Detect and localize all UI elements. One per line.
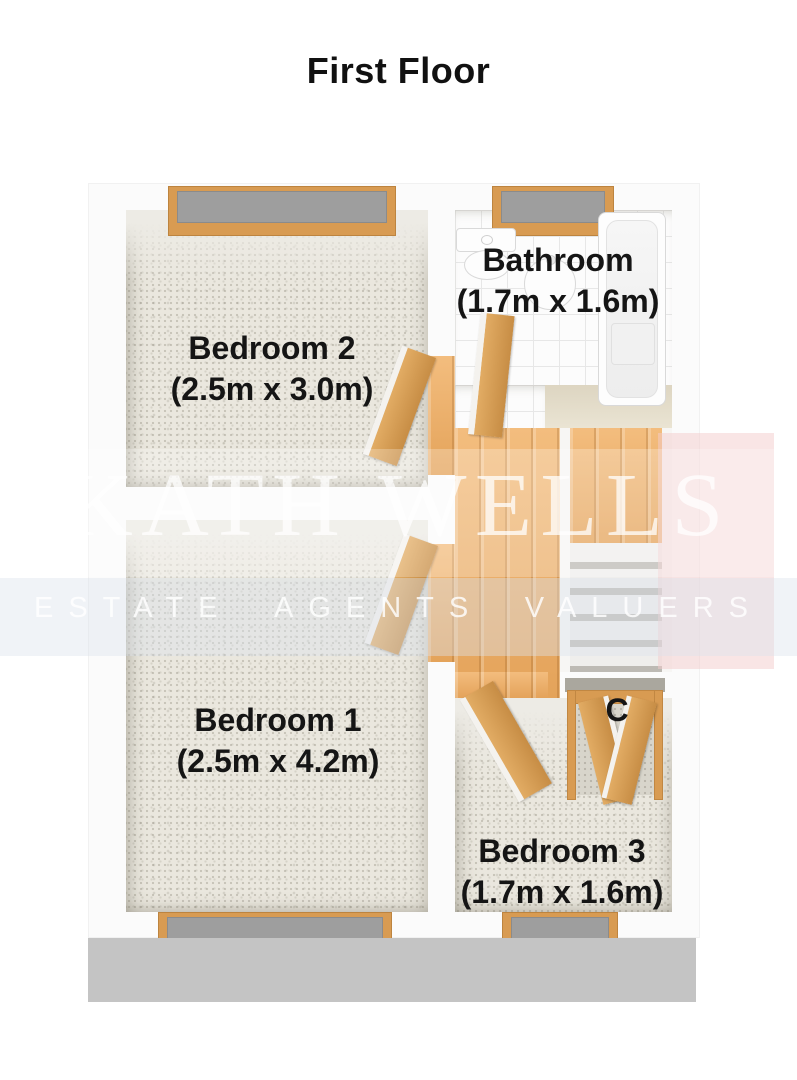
stair-treads	[570, 543, 662, 672]
stair-well	[570, 428, 662, 672]
exterior-wall-face	[88, 938, 696, 1002]
bedroom-1-label: Bedroom 1 (2.5m x 4.2m)	[177, 700, 380, 782]
room-dims: (2.5m x 3.0m)	[171, 369, 374, 410]
landing-floor	[455, 428, 560, 698]
room-name: Bathroom	[457, 240, 660, 281]
room-dims: (2.5m x 4.2m)	[177, 741, 380, 782]
room-dims: (1.7m x 1.6m)	[457, 281, 660, 322]
window-glass	[177, 191, 387, 223]
stair-top-landing	[570, 428, 662, 543]
floorplan-page: First Floor	[0, 0, 797, 1080]
room-name: Bedroom 1	[177, 700, 380, 741]
page-title: First Floor	[0, 50, 797, 92]
cupboard-jamb-left	[567, 690, 576, 800]
shower-panel	[611, 323, 655, 365]
room-dims: (1.7m x 1.6m)	[461, 872, 664, 913]
room-name: Bedroom 2	[171, 328, 374, 369]
bedroom-2-window	[168, 186, 396, 236]
cupboard-label: C	[605, 692, 628, 729]
bedroom-2-label: Bedroom 2 (2.5m x 3.0m)	[171, 328, 374, 410]
window-glass	[501, 191, 605, 223]
bathroom-label: Bathroom (1.7m x 1.6m)	[457, 240, 660, 322]
bedroom-2-doorway-threshold	[428, 356, 455, 475]
staircase	[560, 428, 672, 672]
bedroom-3-label: Bedroom 3 (1.7m x 1.6m)	[461, 831, 664, 913]
room-name: Bedroom 3	[461, 831, 664, 872]
stair-stringer-right	[662, 428, 672, 672]
stair-stringer-left	[560, 428, 570, 672]
